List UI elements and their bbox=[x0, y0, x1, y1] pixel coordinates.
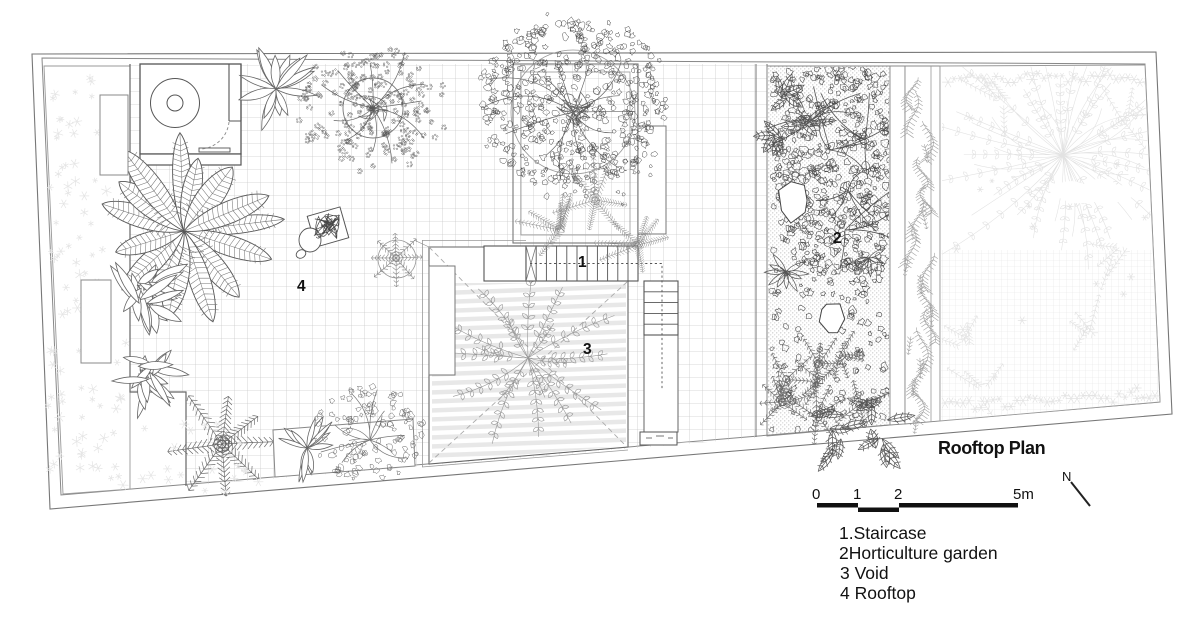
svg-text:N: N bbox=[1062, 469, 1071, 484]
svg-text:2: 2 bbox=[833, 230, 842, 247]
svg-text:2: 2 bbox=[894, 486, 902, 503]
svg-text:1: 1 bbox=[578, 254, 587, 271]
svg-text:5m: 5m bbox=[1013, 486, 1034, 503]
svg-text:1.Staircase: 1.Staircase bbox=[839, 523, 927, 543]
svg-text:4 Rooftop: 4 Rooftop bbox=[840, 583, 916, 603]
svg-text:0: 0 bbox=[812, 486, 820, 503]
svg-text:3: 3 bbox=[583, 341, 592, 358]
svg-text:1: 1 bbox=[853, 486, 861, 503]
svg-text:4: 4 bbox=[297, 278, 306, 295]
svg-text:3 Void: 3 Void bbox=[840, 563, 889, 583]
svg-text:Rooftop Plan: Rooftop Plan bbox=[938, 438, 1045, 458]
svg-text:2Horticulture garden: 2Horticulture garden bbox=[839, 543, 998, 563]
